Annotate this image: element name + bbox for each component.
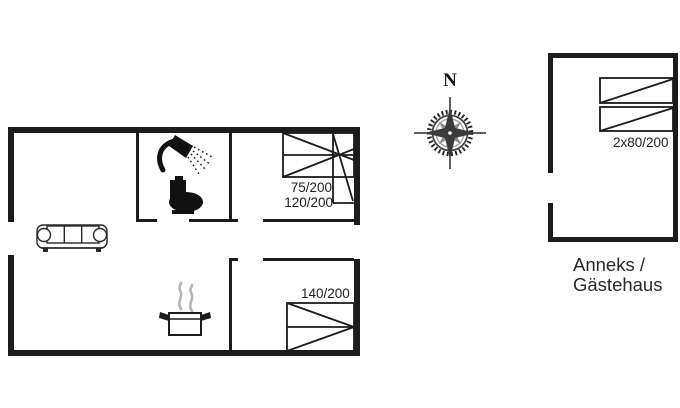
annex-bed-upper [600, 78, 673, 103]
annex-wall-left-lower [548, 203, 553, 242]
wall-bathroom-right [229, 133, 232, 222]
wall-bathroom-bottom-b [189, 219, 232, 222]
bed-75x200 [333, 133, 354, 203]
bed-label-120x200: 120/200 [270, 196, 333, 210]
bed-label-140x200: 140/200 [301, 287, 350, 301]
bed-label-75x200: 75/200 [270, 181, 332, 195]
compass-rose-icon [414, 97, 486, 169]
wall-left-upper [8, 127, 14, 222]
annex-caption: Anneks / Gästehaus [573, 255, 680, 294]
wall-bedroom-top-bottom [263, 219, 354, 222]
wall-bedroom-top-tick [229, 219, 238, 222]
wall-left-lower [8, 255, 14, 356]
sofa-icon [37, 225, 107, 252]
annex-bed-lower [600, 107, 673, 131]
floorplan-canvas [0, 0, 680, 408]
cooking-pot-icon [159, 283, 211, 335]
toilet-icon [169, 176, 203, 214]
annex-caption-line1: Anneks / [573, 255, 680, 275]
annex-wall-left-upper [548, 53, 553, 173]
annex-wall-bottom [548, 237, 678, 242]
floorplan-page: 75/200 120/200 140/200 2x80/200 N Anneks… [0, 0, 680, 408]
wall-bathroom-bottom-a [136, 219, 157, 222]
annex-wall-top [548, 53, 678, 58]
shower-icon [160, 135, 214, 174]
compass-north-label: N [435, 70, 465, 92]
bed-140x200 [287, 303, 354, 351]
bed-label-2x80x200: 2x80/200 [613, 136, 669, 150]
annex-caption-line2: Gästehaus [573, 275, 680, 295]
wall-bathroom-left [136, 133, 139, 222]
wall-kitchen-divider [229, 258, 232, 350]
wall-bedroom-bottom-top [263, 258, 354, 261]
